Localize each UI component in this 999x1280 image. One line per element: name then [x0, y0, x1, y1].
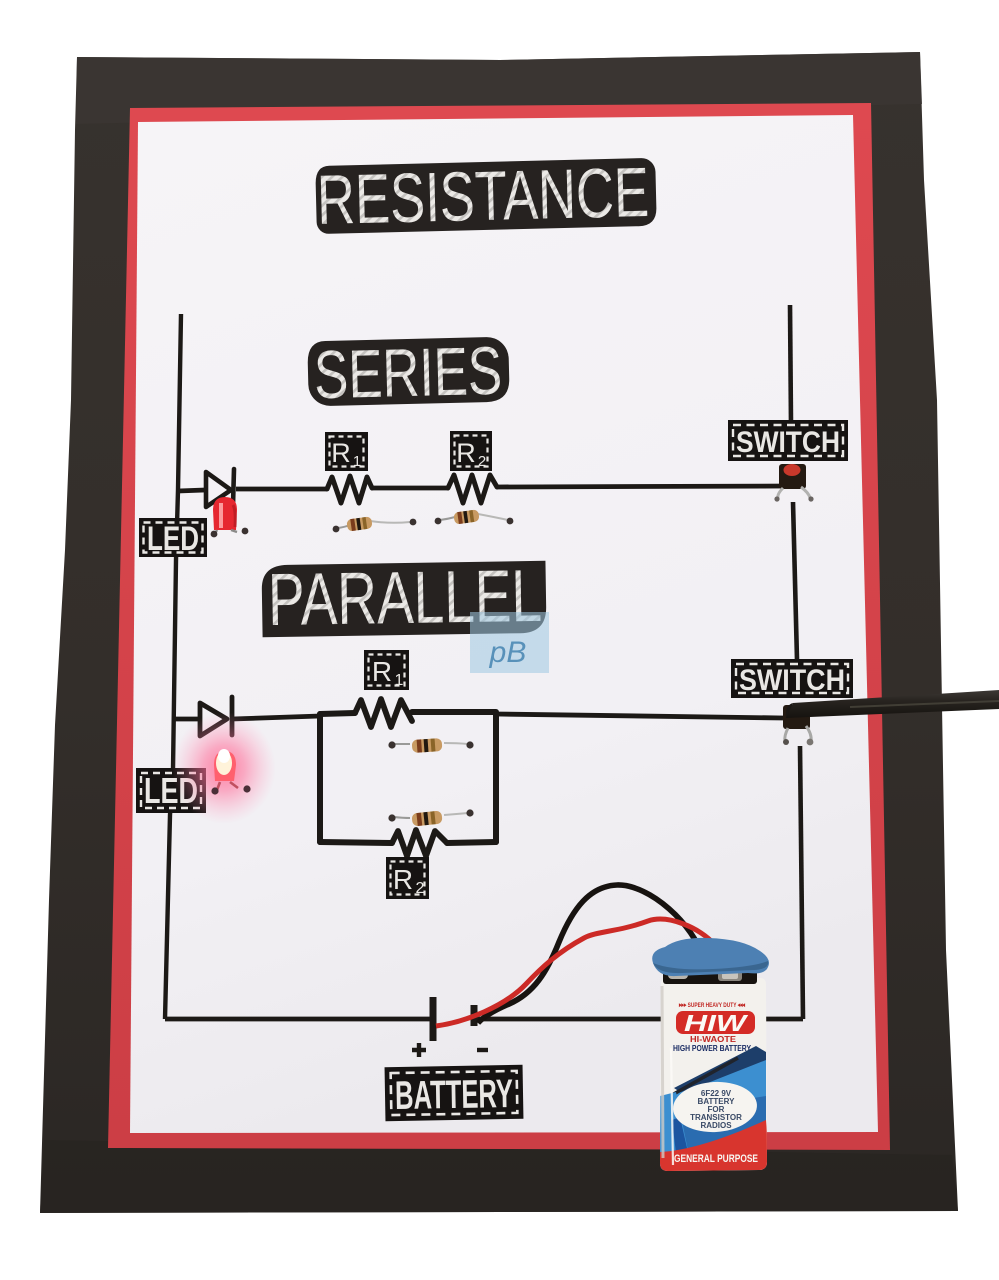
svg-text:R: R — [372, 656, 392, 687]
svg-text:BATTERY: BATTERY — [395, 1072, 514, 1118]
svg-text:R: R — [331, 438, 351, 468]
svg-text:LED: LED — [147, 520, 199, 558]
svg-text:2: 2 — [416, 880, 425, 897]
svg-text:GENERAL PURPOSE: GENERAL PURPOSE — [674, 1153, 758, 1165]
svg-text:2: 2 — [478, 453, 486, 470]
svg-text:R: R — [456, 438, 476, 468]
svg-text:RADIOS: RADIOS — [700, 1121, 732, 1130]
svg-text:HI-WAOTE: HI-WAOTE — [690, 1034, 736, 1044]
svg-text:SWITCH: SWITCH — [736, 426, 840, 459]
svg-text:SERIES: SERIES — [313, 333, 503, 414]
svg-text:1: 1 — [395, 672, 404, 689]
svg-text:▸▸▸ SUPER HEAVY DUTY ◂◂◂: ▸▸▸ SUPER HEAVY DUTY ◂◂◂ — [678, 1002, 745, 1009]
svg-text:R: R — [393, 864, 413, 895]
svg-text:HIW: HIW — [684, 1010, 749, 1036]
svg-text:pB: pB — [489, 636, 527, 669]
svg-text:RESISTANCE: RESISTANCE — [316, 153, 650, 239]
svg-text:1: 1 — [353, 453, 361, 470]
svg-text:HIGH POWER BATTERY: HIGH POWER BATTERY — [673, 1044, 752, 1053]
svg-text:SWITCH: SWITCH — [739, 664, 845, 697]
